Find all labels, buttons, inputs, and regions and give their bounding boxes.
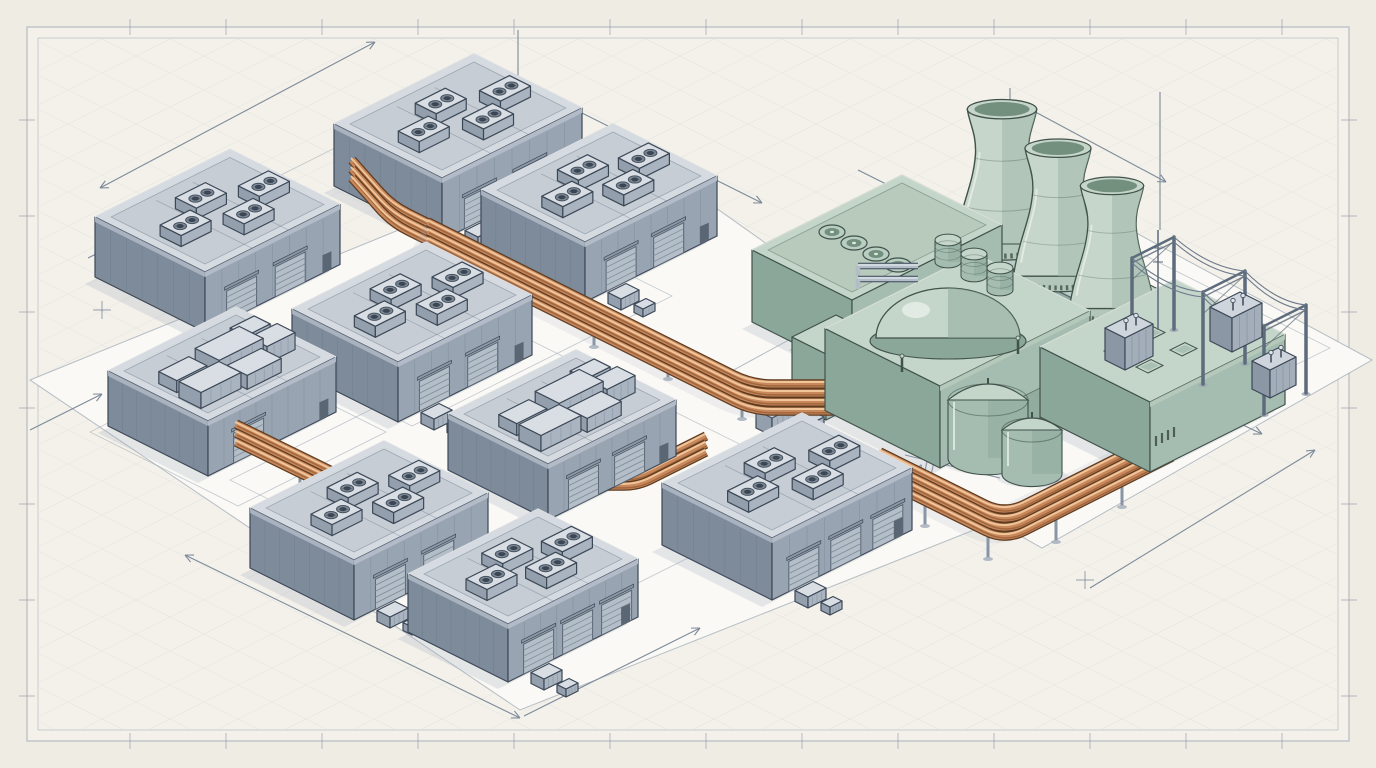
rooftop-drum xyxy=(961,248,987,282)
rooftop-drum xyxy=(987,262,1013,296)
roof-vent-fan xyxy=(841,236,867,250)
roof-vent-fan xyxy=(819,225,845,239)
roof-vent-fan xyxy=(863,247,889,261)
rooftop-drum xyxy=(935,234,961,268)
tower-opening xyxy=(1032,141,1084,155)
blueprint-canvas xyxy=(0,0,1376,768)
tower-opening xyxy=(1087,179,1137,192)
isometric-blueprint-illustration xyxy=(0,0,1376,768)
tower-opening xyxy=(974,102,1029,116)
